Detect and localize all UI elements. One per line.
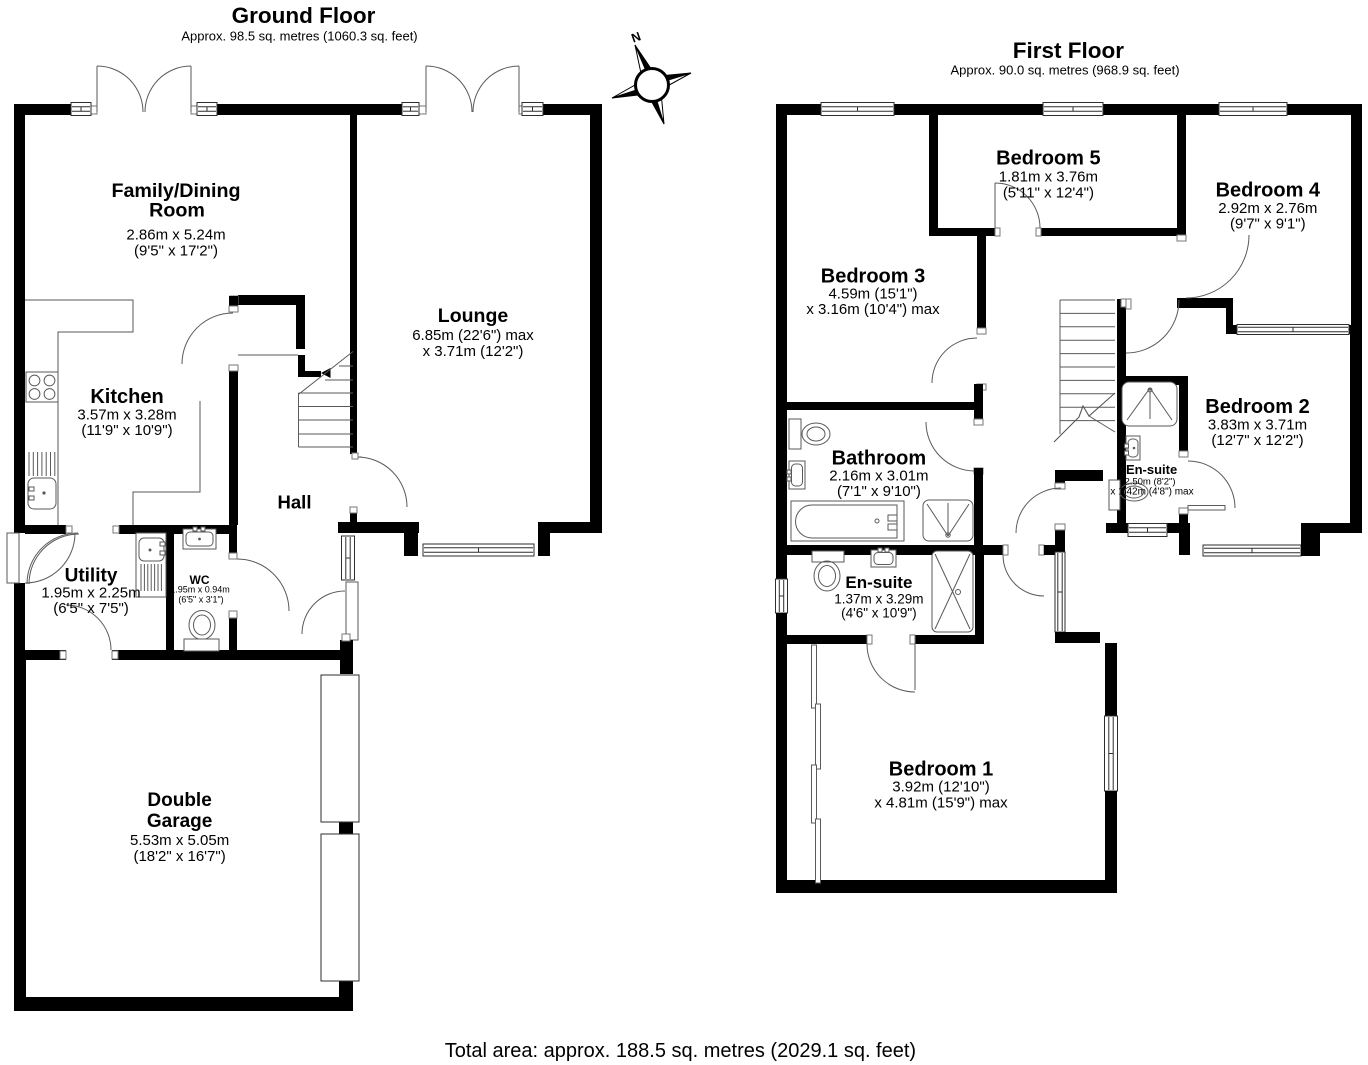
- svg-text:Kitchen: Kitchen: [90, 386, 163, 408]
- svg-text:(12'7" x 12'2"): (12'7" x 12'2"): [1211, 432, 1303, 449]
- svg-text:1.95m x 2.25m: 1.95m x 2.25m: [41, 585, 140, 602]
- svg-text:Lounge: Lounge: [438, 305, 509, 327]
- svg-text:x 3.71m (12'2"): x 3.71m (12'2"): [423, 343, 524, 360]
- svg-text:Double: Double: [147, 790, 211, 811]
- svg-text:(9'7" x 9'1"): (9'7" x 9'1"): [1230, 216, 1306, 233]
- svg-text:(6'5" x 3'1"): (6'5" x 3'1"): [178, 595, 223, 605]
- svg-text:2.92m x 2.76m: 2.92m x 2.76m: [1218, 200, 1317, 217]
- svg-text:(6'5" x 7'5"): (6'5" x 7'5"): [53, 600, 129, 617]
- svg-text:(4'6" x 10'9"): (4'6" x 10'9"): [841, 606, 917, 621]
- svg-text:Garage: Garage: [147, 811, 212, 832]
- svg-text:(11'9" x 10'9"): (11'9" x 10'9"): [81, 422, 172, 439]
- svg-text:Room: Room: [149, 200, 205, 222]
- svg-text:Bedroom 1: Bedroom 1: [889, 759, 993, 781]
- svg-text:Hall: Hall: [278, 492, 312, 513]
- svg-text:1.95m x 0.94m: 1.95m x 0.94m: [170, 585, 230, 595]
- svg-text:Approx. 98.5 sq. metres (1060.: Approx. 98.5 sq. metres (1060.3 sq. feet…: [181, 29, 417, 44]
- svg-text:Utility: Utility: [65, 566, 118, 587]
- svg-text:3.83m x 3.71m: 3.83m x 3.71m: [1208, 417, 1307, 434]
- svg-text:1.81m x 3.76m: 1.81m x 3.76m: [999, 169, 1098, 186]
- svg-text:(5'11" x 12'4"): (5'11" x 12'4"): [1003, 185, 1094, 202]
- svg-text:Bedroom 5: Bedroom 5: [996, 148, 1100, 170]
- svg-text:(18'2" x 16'7"): (18'2" x 16'7"): [133, 848, 225, 865]
- svg-text:Bathroom: Bathroom: [832, 448, 926, 470]
- svg-text:2.86m x 5.24m: 2.86m x 5.24m: [126, 227, 225, 244]
- svg-text:5.53m x 5.05m: 5.53m x 5.05m: [130, 832, 229, 849]
- svg-text:Ground Floor: Ground Floor: [232, 3, 376, 28]
- svg-text:En-suite: En-suite: [1126, 462, 1177, 477]
- svg-text:4.59m (15'1"): 4.59m (15'1"): [828, 286, 917, 303]
- svg-text:3.92m (12'10"): 3.92m (12'10"): [892, 779, 989, 796]
- svg-text:En-suite: En-suite: [845, 573, 912, 592]
- svg-text:1.37m x 3.29m: 1.37m x 3.29m: [834, 592, 923, 607]
- svg-text:First Floor: First Floor: [1013, 38, 1124, 63]
- svg-text:Approx. 90.0 sq. metres (968.9: Approx. 90.0 sq. metres (968.9 sq. feet): [950, 63, 1179, 78]
- svg-text:(7'1" x 9'10"): (7'1" x 9'10"): [837, 483, 921, 500]
- svg-text:6.85m (22'6") max: 6.85m (22'6") max: [412, 327, 534, 344]
- svg-text:Bedroom 4: Bedroom 4: [1216, 180, 1321, 202]
- svg-text:2.16m x 3.01m: 2.16m x 3.01m: [829, 468, 928, 485]
- svg-text:x 4.81m (15'9") max: x 4.81m (15'9") max: [874, 795, 1008, 812]
- svg-text:x 1.42m (4'8") max: x 1.42m (4'8") max: [1110, 487, 1193, 498]
- svg-text:(9'5" x 17'2"): (9'5" x 17'2"): [134, 243, 218, 260]
- svg-text:Total area: approx. 188.5 sq.: Total area: approx. 188.5 sq. metres (20…: [445, 1040, 916, 1062]
- svg-text:x 3.16m (10'4") max: x 3.16m (10'4") max: [806, 301, 940, 318]
- svg-text:Bedroom 3: Bedroom 3: [821, 266, 925, 288]
- svg-text:3.57m x 3.28m: 3.57m x 3.28m: [77, 407, 176, 424]
- svg-text:Bedroom 2: Bedroom 2: [1205, 396, 1309, 418]
